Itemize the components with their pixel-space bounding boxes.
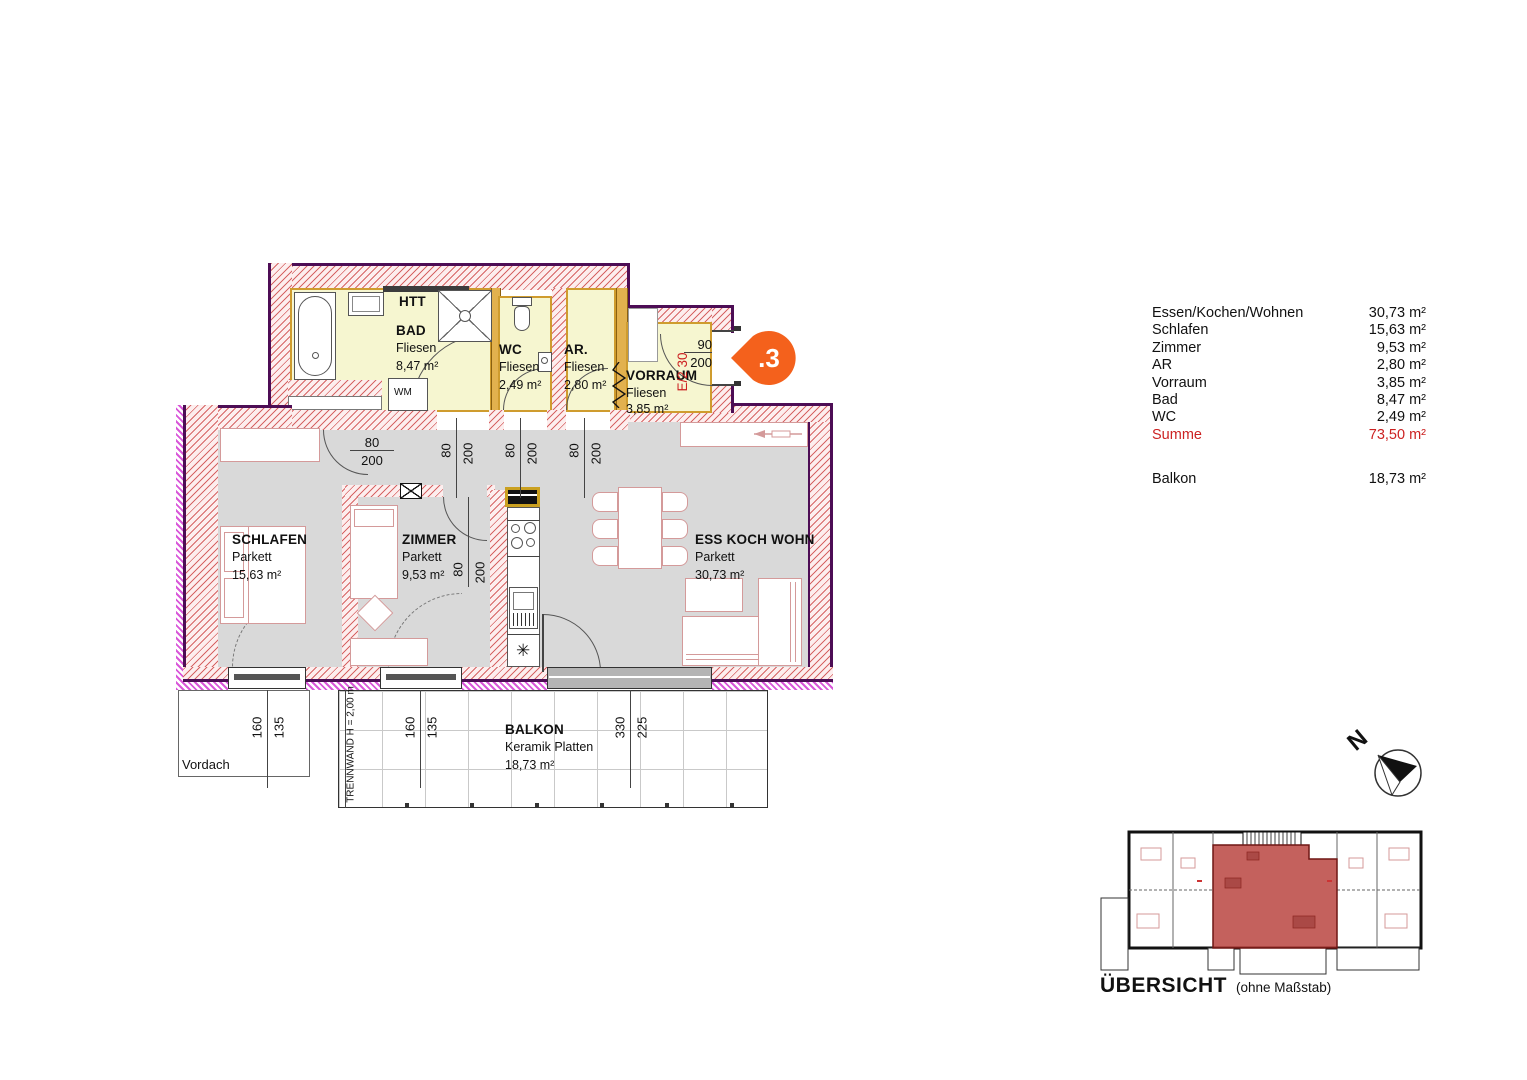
dining-chair-right-1	[662, 492, 688, 512]
dining-chair-left-2	[592, 519, 618, 539]
overview-plan	[1097, 818, 1432, 976]
wall-top-outline	[268, 263, 630, 266]
overview-title-note: (ohne Maßstab)	[1236, 980, 1331, 995]
vorraum-wardrobe	[628, 308, 658, 362]
north-arrow-icon: N	[1338, 716, 1438, 811]
bad-name: BAD	[396, 323, 426, 338]
legend-spacer	[1152, 444, 1426, 471]
insulation-south-1	[176, 682, 228, 690]
legend-row-summe: Summe73,50 m²	[1152, 427, 1426, 444]
wohnen-area: 30,73 m²	[695, 568, 744, 582]
legend-row: AR2,80 m²	[1152, 357, 1426, 374]
zimmer-desk	[350, 638, 428, 666]
balcony-tick-6	[730, 803, 734, 807]
kitchen-divider-3	[507, 634, 540, 635]
toilet-tank	[512, 297, 532, 306]
legend-label: Balkon	[1152, 471, 1196, 488]
wall-zimmer-top-1	[345, 485, 400, 497]
wc-door-h: 200	[525, 437, 538, 471]
schlafen-window-w: 160	[250, 711, 263, 745]
schlafen-area: 15,63 m²	[232, 568, 281, 582]
schlafen-pillow-2	[224, 578, 244, 618]
trennwand-label: TRENNWAND H = 2,00 m	[346, 685, 359, 805]
bad-door-dimline	[456, 418, 457, 498]
ar-name: AR.	[564, 342, 588, 357]
insulation-south-3	[462, 682, 547, 690]
vorraum-area: 3,85 m²	[626, 402, 668, 416]
wohnen-window-dimline	[630, 690, 631, 788]
ar-door-dimline	[584, 418, 585, 498]
insulation-west	[176, 405, 183, 690]
bad-door-w: 80	[439, 434, 452, 468]
oven-window	[513, 592, 534, 610]
wall-block-bottom-1	[268, 410, 437, 430]
zimmer-door-w: 80	[451, 553, 464, 587]
dining-chair-left-3	[592, 546, 618, 566]
balcony-tick-1	[405, 803, 409, 807]
legend-row: Zimmer9,53 m²	[1152, 340, 1426, 357]
area-legend: Essen/Kochen/Wohnen30,73 m² Schlafen15,6…	[1152, 305, 1426, 489]
wc-floor-label: Fliesen	[499, 360, 539, 374]
terrace-sliding-door-track	[549, 676, 710, 678]
kitchen-divider-2	[507, 556, 540, 557]
wc-name: WC	[499, 342, 522, 357]
legend-row: Essen/Kochen/Wohnen30,73 m²	[1152, 305, 1426, 322]
wall-block-bottom-2	[489, 410, 504, 430]
wohnen-window-w: 330	[613, 711, 626, 745]
wc-door-dimline	[520, 418, 521, 498]
stove-burner-3	[511, 537, 523, 549]
schlafen-window-glass	[234, 674, 300, 680]
legend-row: Vorraum3,85 m²	[1152, 375, 1426, 392]
sofa-back-line-1	[790, 582, 791, 662]
insulation-south-2	[306, 682, 380, 690]
wall-step-top-outline	[731, 403, 833, 406]
wall-left-block-outline	[268, 263, 271, 410]
kitchen-shaft	[505, 487, 540, 507]
oven-vent	[513, 613, 534, 626]
zimmer-window-glass	[386, 674, 456, 680]
schlafen-door-dimline	[350, 450, 394, 451]
dining-chair-right-3	[662, 546, 688, 566]
zimmer-name: ZIMMER	[402, 532, 456, 547]
schlafen-name: SCHLAFEN	[232, 532, 307, 547]
wall-kitchen	[490, 490, 507, 667]
overview-title-main: ÜBERSICHT	[1100, 974, 1227, 998]
balkon-floor-label: Keramik Platten	[505, 740, 593, 754]
legend-row: Bad8,47 m²	[1152, 392, 1426, 409]
toilet-bowl	[514, 306, 530, 331]
balcony-tick-2	[470, 803, 474, 807]
stove-burner-1	[511, 524, 520, 533]
kitchen-sink-symbol: ✳	[516, 641, 530, 661]
bad-niche	[288, 396, 382, 410]
legend-row-balkon: Balkon18,73 m²	[1152, 471, 1426, 488]
legend-label: WC	[1152, 409, 1176, 426]
wall-zimmer-top-2	[422, 485, 443, 497]
legend-value: 15,63 m²	[1369, 322, 1426, 339]
vorraum-floor-label: Fliesen	[626, 386, 666, 400]
terrace-door-leaf	[542, 614, 544, 672]
legend-value: 2,80 m²	[1377, 357, 1426, 374]
wall-block-bottom-3	[547, 410, 566, 430]
sideboard-arrow-icon	[750, 428, 806, 440]
zimmer-door-h: 200	[473, 556, 486, 590]
shaft-box-zimmer-wall	[400, 483, 422, 499]
schlafen-wardrobe	[220, 428, 320, 462]
htt-label: HTT	[399, 294, 426, 309]
legend-row: Schlafen15,63 m²	[1152, 322, 1426, 339]
north-label: N	[1342, 725, 1373, 757]
dining-chair-left-1	[592, 492, 618, 512]
legend-label: Bad	[1152, 392, 1178, 409]
stove-burner-2	[524, 522, 536, 534]
entry-code-label: E/2 30	[675, 342, 689, 402]
ar-area: 2,80 m²	[564, 378, 606, 392]
wc-sink-bowl	[541, 357, 548, 364]
schlafen-door-w: 80	[352, 435, 392, 450]
zimmer-area: 9,53 m²	[402, 568, 444, 582]
legend-value: 9,53 m²	[1377, 340, 1426, 357]
schlafen-floor-label: Parkett	[232, 550, 272, 564]
legend-row: WC2,49 m²	[1152, 409, 1426, 426]
terrace-sliding-door	[547, 667, 712, 689]
legend-value: 3,85 m²	[1377, 375, 1426, 392]
washing-machine-label: WM	[394, 387, 412, 398]
kitchen-divider-1	[507, 520, 540, 521]
shower-drain	[459, 310, 471, 322]
vordach-label: Vordach	[182, 757, 230, 772]
schlafen-window-dimline	[267, 690, 268, 788]
legend-label: Vorraum	[1152, 375, 1207, 392]
ar-door-w: 80	[567, 434, 580, 468]
wohnen-window-h: 225	[635, 711, 648, 745]
balkon-area: 18,73 m²	[505, 758, 554, 772]
zimmer-floor-label: Parkett	[402, 550, 442, 564]
wall-bad-niche	[288, 380, 382, 396]
legend-value: 73,50 m²	[1369, 427, 1426, 444]
legend-value: 2,49 m²	[1377, 409, 1426, 426]
ar-floor-label: Fliesen	[564, 360, 604, 374]
wall-west-outline	[183, 405, 186, 690]
unit-badge-number: .3	[758, 343, 780, 373]
balcony-tick-3	[535, 803, 539, 807]
zimmer-door-dimline	[468, 497, 469, 587]
zimmer-window-dimline	[420, 690, 421, 788]
dining-table	[618, 487, 662, 569]
legend-label: Summe	[1152, 427, 1202, 444]
bathtub-inner	[298, 296, 332, 376]
insulation-south-4	[712, 682, 833, 690]
legend-value: 8,47 m²	[1377, 392, 1426, 409]
legend-value: 18,73 m²	[1369, 471, 1426, 488]
legend-label: Zimmer	[1152, 340, 1201, 357]
zimmer-window-h: 135	[425, 711, 438, 745]
bad-door-h: 200	[461, 437, 474, 471]
wall-right-outline	[830, 403, 833, 682]
zimmer-window-w: 160	[403, 711, 416, 745]
wc-area: 2,49 m²	[499, 378, 541, 392]
schlafen-window-h: 135	[272, 711, 285, 745]
stove-burner-4	[526, 538, 535, 547]
wohnen-name: ESS KOCH WOHN	[695, 532, 815, 547]
balcony-tick-5	[665, 803, 669, 807]
bad-area: 8,47 m²	[396, 359, 438, 373]
wall-west	[183, 405, 218, 690]
schlafen-door-h: 200	[352, 453, 392, 468]
sofa-back-line-2	[795, 582, 796, 662]
dining-chair-right-2	[662, 519, 688, 539]
floor-plan-sheet: TRENNWAND H = 2,00 m Vordach WM ✳	[0, 0, 1527, 1080]
ar-door-h: 200	[589, 437, 602, 471]
legend-label: Essen/Kochen/Wohnen	[1152, 305, 1303, 322]
bad-floor-label: Fliesen	[396, 341, 436, 355]
folding-door-icon	[612, 362, 626, 408]
wc-door-w: 80	[503, 434, 516, 468]
balkon-name: BALKON	[505, 722, 564, 737]
overview-title: ÜBERSICHT (ohne Maßstab)	[1100, 974, 1331, 998]
legend-value: 30,73 m²	[1369, 305, 1426, 322]
bad-sink-inner	[352, 296, 380, 312]
bathtub-drain	[312, 352, 319, 359]
unit-badge: .3	[729, 326, 797, 390]
balcony-tick-4	[600, 803, 604, 807]
wohnen-floor-label: Parkett	[695, 550, 735, 564]
zimmer-pillow	[354, 509, 394, 527]
legend-label: Schlafen	[1152, 322, 1208, 339]
coffee-table	[685, 578, 743, 612]
legend-label: AR	[1152, 357, 1172, 374]
